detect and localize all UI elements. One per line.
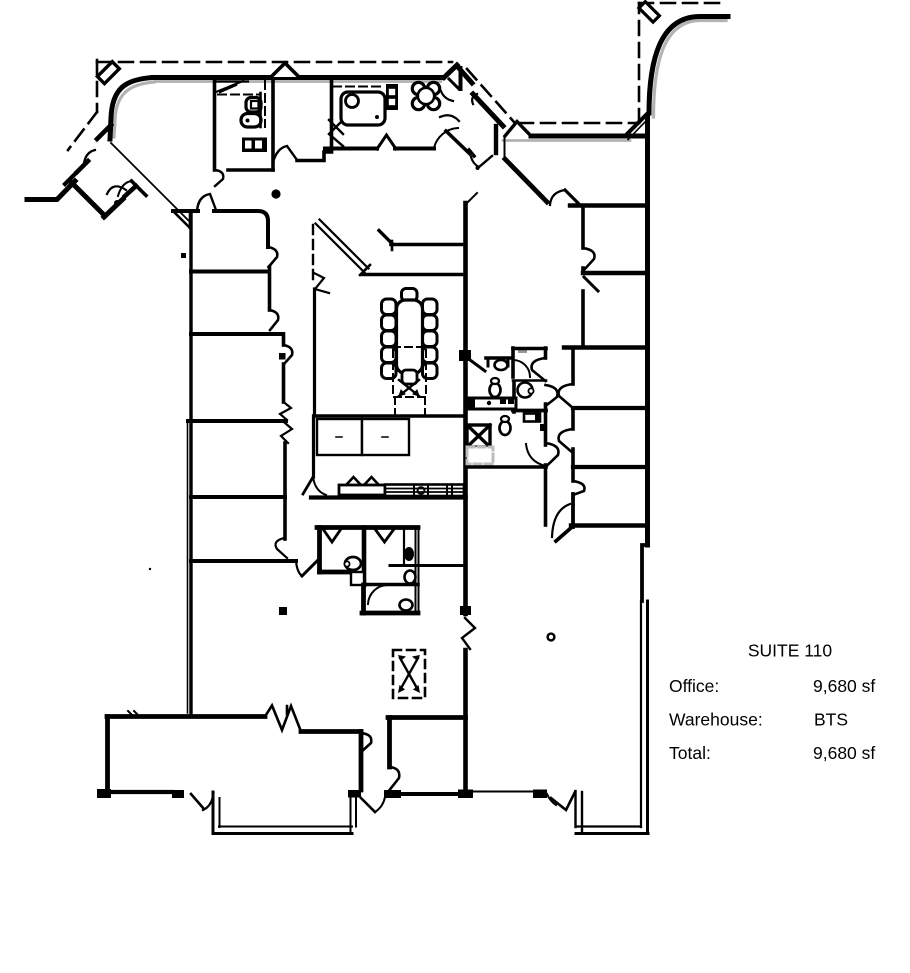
- svg-text:BTS: BTS: [814, 710, 848, 730]
- svg-text:Office:: Office:: [669, 676, 719, 696]
- svg-text:9,680 sf: 9,680 sf: [813, 743, 875, 763]
- svg-text:Total:: Total:: [669, 743, 711, 763]
- svg-text:9,680 sf: 9,680 sf: [813, 676, 875, 696]
- svg-text:Warehouse:: Warehouse:: [669, 710, 763, 730]
- svg-text:SUITE 110: SUITE 110: [748, 641, 833, 661]
